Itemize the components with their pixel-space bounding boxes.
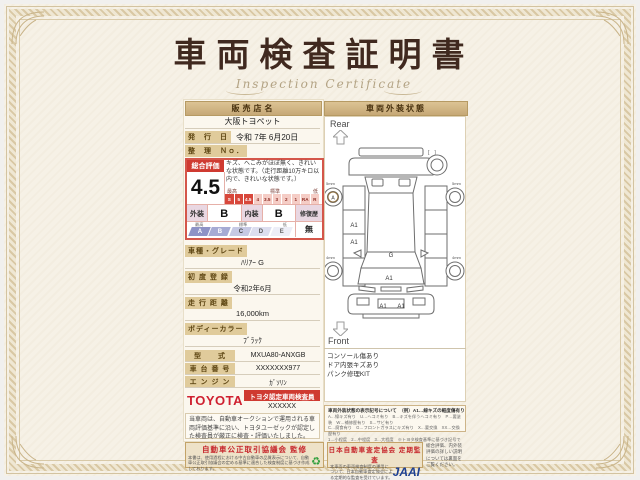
- overall-rating-score: 4.5: [187, 172, 225, 204]
- dealer-header-bar: 販売店名: [185, 101, 322, 116]
- body-color-label: ボディーカラー: [185, 323, 247, 335]
- dealer-name: 大阪トヨペット: [185, 116, 320, 127]
- divider: [185, 294, 320, 295]
- model-grade-value: ﾊﾘｱｰ G: [185, 257, 320, 268]
- issue-date-value: 令和 7年 6月20日: [236, 132, 298, 143]
- mileage-label: 走 行 距 離: [185, 297, 232, 309]
- mileage-value: 16,000km: [185, 309, 320, 318]
- grade-cell: D: [249, 227, 272, 236]
- inspector-id: XXXXXX: [244, 403, 320, 410]
- certificate-background: 車両検査証明書 Inspection Certificate 販売店名 大阪トヨ…: [4, 4, 636, 476]
- scale-cell: S: [225, 194, 235, 204]
- corner-flourish-icon: [10, 434, 46, 470]
- grade-cell: B: [209, 227, 232, 236]
- legend-title: 車両外装状態の表示記号について: [328, 408, 397, 413]
- divider: [185, 268, 320, 269]
- certificate-subtitle: Inspection Certificate: [4, 77, 640, 91]
- exterior-grade-label: 外装: [187, 205, 208, 222]
- overall-rating-label: 総合評価: [187, 160, 224, 172]
- fair-trade-council-box: 自動車公正取引協議会 監修 本書は、使用過程における中古自動車の品質表示について…: [185, 442, 324, 468]
- exterior-condition-header-bar: 車両外装状態: [324, 101, 468, 116]
- scale-cell: 4.5: [244, 194, 254, 204]
- note-item: パンク修理KIT: [327, 370, 463, 379]
- tire-depth-front-left: 4mm: [326, 255, 336, 260]
- first-registration-label: 初 度 登 録: [185, 271, 232, 283]
- tire-depth-rear-right: 5mm: [452, 181, 462, 186]
- front-door-mark: A1: [350, 240, 358, 246]
- interior-grade-label: 内装: [242, 205, 263, 222]
- interior-grade-value: B: [263, 205, 297, 222]
- fair-trade-council-text: 本書は、使用過程における中古自動車の品質表示について、自動車公正取引協議会の定め…: [188, 455, 311, 471]
- jaai-audit-text: 本車両の車両検査制度の運用について、日本自動車査定協会による定期的な監査を受けて…: [330, 464, 393, 480]
- certificate-page: 車両検査証明書 Inspection Certificate 販売店名 大阪トヨ…: [0, 0, 640, 480]
- rear-door-mark: A1: [350, 223, 358, 229]
- certified-inspector-badge: トヨタ認定車両検査員: [244, 390, 320, 401]
- body-color-value: ﾌﾞﾗｯｸ: [185, 335, 320, 346]
- divider: [185, 128, 320, 129]
- model-code-value: MXUA80-ANXGB: [236, 352, 320, 359]
- divider: [185, 387, 320, 388]
- glass-mark: G: [389, 253, 394, 259]
- exterior-grade-value: B: [208, 205, 242, 222]
- scale-cell: 3.5: [263, 194, 273, 204]
- grade-scale-row: 最高 標準 低 A B C D E 無: [187, 221, 322, 237]
- repair-history-value: 無: [296, 222, 322, 237]
- legend-line: C…腐食有り G…フロントガラスにキズ有り X…要交換 XX…交換歴有り: [328, 425, 462, 436]
- bumper-mark-right: A1: [397, 304, 405, 310]
- tire-depth-rear-left: 5mm: [326, 181, 336, 186]
- condition-notes: コンソール傷あり ドア内張キズあり パンク修理KIT: [327, 352, 463, 379]
- note-item: コンソール傷あり: [327, 352, 463, 361]
- chassis-number-value: XXXXXXX977: [236, 365, 320, 372]
- fair-trade-council-title: 自動車公正取引協議会 監修: [186, 444, 323, 455]
- grade-cell: E: [270, 227, 293, 236]
- scale-cell: 5: [235, 194, 245, 204]
- divider: [324, 348, 466, 349]
- back-page-note: 総合評価、内外装評価の詳しい説明については裏面をご覧ください。: [426, 443, 466, 468]
- repair-history-label: 修復歴: [296, 205, 322, 222]
- first-registration-value: 令和2年6月: [185, 283, 320, 294]
- jaai-audit-box: 日本自動車査定協会 定期監査 本車両の車両検査制度の運用について、日本自動車査定…: [327, 442, 423, 468]
- divider: [185, 143, 320, 144]
- divider: [185, 374, 320, 375]
- scale-cell: RA: [301, 194, 311, 204]
- issue-date-label: 発 行 日: [185, 131, 231, 143]
- car-top-view-diagram: A [ ] A1 A1 G A1 A1 A1 5mm 5mm 4mm 4mm: [325, 146, 465, 325]
- inspection-statement: 当車両は、自動車オークションで運用される車両評価基準に沿い、トヨタユーゼックが認…: [185, 413, 320, 439]
- reference-number-label: 整 理 Ｎｏ．: [185, 145, 247, 157]
- rating-scale-bar: S 5 4.5 4 3.5 3 2 1 RA R: [225, 194, 320, 204]
- spare-tire-slot-label: [ ]: [428, 150, 436, 156]
- toyota-logo: TOYOTA: [187, 393, 243, 408]
- scale-cell: R: [311, 194, 321, 204]
- subtitle-flourish-right: [384, 86, 422, 95]
- grade-row: 外装 B 内装 B 修復歴: [187, 204, 322, 222]
- jaai-logo: JAAI: [393, 465, 420, 479]
- hood-mark: A1: [385, 276, 393, 282]
- scale-cell: 2: [282, 194, 292, 204]
- symbol-legend-box: 車両外装状態の表示記号について （例）A1…線キズの軽度傷有り A…線キズ有り …: [324, 405, 466, 432]
- grade-scale-bar: 最高 標準 低 A B C D E: [187, 222, 296, 237]
- scale-cell: 4: [254, 194, 264, 204]
- certificate-title: 車両検査証明書: [4, 28, 640, 76]
- front-label: Front: [328, 336, 349, 346]
- bumper-mark-left: A1: [379, 304, 387, 310]
- rating-description: キズ、へこみがほぼ無く、きれいな状態です。（走行距離10万キロ以内で、きれいな状…: [226, 161, 320, 188]
- scale-cell: 1: [292, 194, 302, 204]
- fair-trade-seal-icon: ♻: [311, 455, 321, 471]
- overall-rating-box: 総合評価 4.5 キズ、へこみがほぼ無く、きれいな状態です。（走行距離10万キロ…: [185, 158, 324, 240]
- tire-depth-front-right: 4mm: [452, 255, 462, 260]
- divider: [185, 320, 320, 321]
- legend-line: A…線キズ有り U…ヘコミ有り B…キズを伴うヘコミ有り P…要塗装 W…補修歴…: [328, 414, 462, 425]
- legend-example: （例）A1…線キズの軽度傷有り: [401, 408, 464, 413]
- divider: [185, 361, 320, 362]
- note-item: ドア内張キズあり: [327, 361, 463, 370]
- divider: [185, 346, 320, 347]
- scale-cell: 3: [273, 194, 283, 204]
- corner-flourish-icon: [594, 434, 630, 470]
- model-grade-label: 車種・グレード: [185, 245, 247, 257]
- jaai-audit-title: 日本自動車査定協会 定期監査: [328, 444, 422, 464]
- rear-label: Rear: [330, 119, 350, 129]
